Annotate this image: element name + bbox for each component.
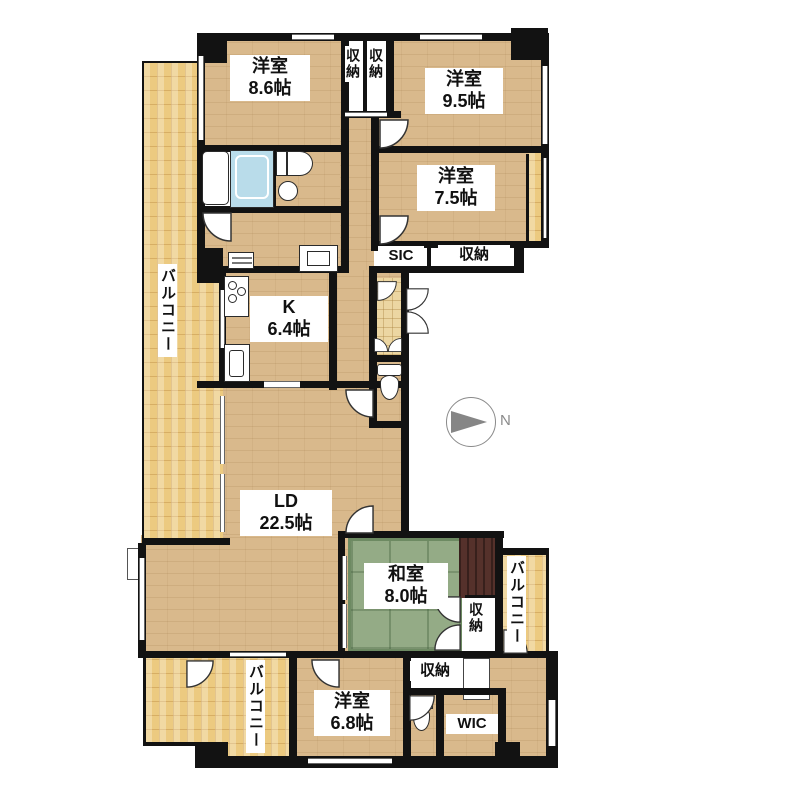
detail-line [232,262,252,264]
sic-label: SIC [378,246,424,266]
room-name: LD [243,491,329,513]
room-size: 8.0帖 [367,586,445,608]
window [292,34,334,40]
room-name: 洋室 [428,69,500,91]
compass: N [442,394,532,452]
wall [143,658,146,744]
balcony-bottom-left-gap [143,744,196,768]
room-size: 6.4帖 [253,319,325,341]
sliding-door-mark [342,556,347,600]
wall [403,688,506,695]
wall [526,154,529,244]
wall [371,266,521,273]
door-arc-bedroom-9-5 [379,119,409,149]
room-label-bedroom-6-8: 洋室 6.8帖 [314,690,390,736]
wall-pillar [511,28,548,60]
balcony-left-upper [143,62,200,287]
stove-icon [224,276,249,317]
laundry-pan-icon [228,252,254,269]
wall [497,548,549,555]
room-name: 洋室 [233,56,307,78]
wall-pillar [195,742,228,768]
kitchen-sink-icon [224,344,250,382]
bath-vanity [202,151,229,205]
washing-machine-drum [307,251,330,266]
front-door-leaf-1 [406,288,429,311]
window [543,158,547,238]
washbasin-icon [278,181,298,201]
balcony-left-lower [143,283,223,545]
room-size: 22.5帖 [243,513,329,535]
room-name: 洋室 [420,166,492,188]
window [420,34,482,40]
wall [143,538,230,545]
burner [228,281,237,290]
front-door-leaf-2 [406,311,429,334]
washing-machine-icon [299,245,338,272]
burner [237,287,246,296]
window [220,474,225,532]
room-label-bedroom-8-6: 洋室 8.6帖 [230,55,310,101]
wall [427,244,431,269]
wall [329,266,337,390]
door-arc-tatami-2 [434,624,461,651]
wall [436,688,444,765]
balcony-label-right: バルコニー [507,556,526,649]
door-arc-bedroom-6-8 [311,659,340,688]
toilet-icon-upper-tank [276,151,287,176]
toilet-icon-upper-bowl [287,151,313,176]
room-size: 7.5帖 [420,188,492,210]
room-label-japanese: 和室 8.0帖 [364,563,448,609]
detail-line [232,257,252,259]
wall [197,33,548,41]
storage-label-top-1: 収納 [345,46,361,82]
wall-pillar [197,248,223,283]
balcony-label-bottom: バルコニー [246,660,265,753]
room-name: 洋室 [317,691,387,713]
room-label-kitchen: K 6.4帖 [250,296,328,342]
door-arc-balcony-bottom [186,660,214,688]
sink-basin [229,350,244,377]
room-label-living-dining: LD 22.5帖 [240,490,332,536]
wall [143,742,197,746]
storage-label-right-of-tatami: 収納 [468,600,484,636]
wall [289,651,297,765]
sliding-door-mark [342,604,347,648]
wall [369,355,409,362]
door-arc-bedroom-7-5 [379,215,409,245]
floor-plan: 洋室 8.6帖 洋室 9.5帖 洋室 7.5帖 収納 収納 SIC 収納 K 6… [0,0,800,800]
window [308,758,392,764]
genkan-step-arc-2 [388,338,402,352]
door-arc-washroom [202,212,232,242]
room-name: 和室 [367,564,445,586]
window [198,56,204,140]
wall [546,551,549,658]
wall [514,241,524,273]
door-arc-toilet-lower [409,695,435,721]
burner [228,294,237,303]
room-size: 9.5帖 [428,91,500,113]
window [548,700,556,746]
opening [264,381,300,388]
room-size: 6.8帖 [317,713,387,735]
genkan-step-arc-1 [374,338,388,352]
door-arc-ld-upper [345,389,374,418]
storage-label-below-tatami: 収納 [410,661,460,681]
wall [371,111,379,251]
compass-north-label: N [500,412,511,429]
storage-label-top-right: 収納 [438,245,510,265]
storage-label-top-2: 収納 [368,46,384,82]
wall [363,40,367,114]
bathtub-inner [235,155,269,199]
balcony-edge [142,61,144,545]
room-size: 8.6帖 [233,78,307,100]
window [230,652,286,657]
wic-label: WIC [446,714,498,734]
room-label-bedroom-7-5: 洋室 7.5帖 [417,165,495,211]
compass-needle-icon [451,411,487,433]
window [542,66,548,144]
wall [138,651,558,658]
window [139,558,145,640]
room-label-bedroom-9-5: 洋室 9.5帖 [425,68,503,114]
balcony-label-left: バルコニー [158,264,177,357]
bathtub [230,150,274,208]
tokonoma-alcove [459,538,497,598]
wall [465,595,497,598]
balcony-edge [142,61,200,63]
wall-pillar [495,742,520,768]
door-arc-genkan [377,281,397,301]
wall [197,381,409,388]
room-name: K [253,297,325,319]
window [220,396,225,464]
door-arc-ld-lower [345,505,374,534]
wall [386,33,394,118]
sliding-door-mark [345,112,387,117]
